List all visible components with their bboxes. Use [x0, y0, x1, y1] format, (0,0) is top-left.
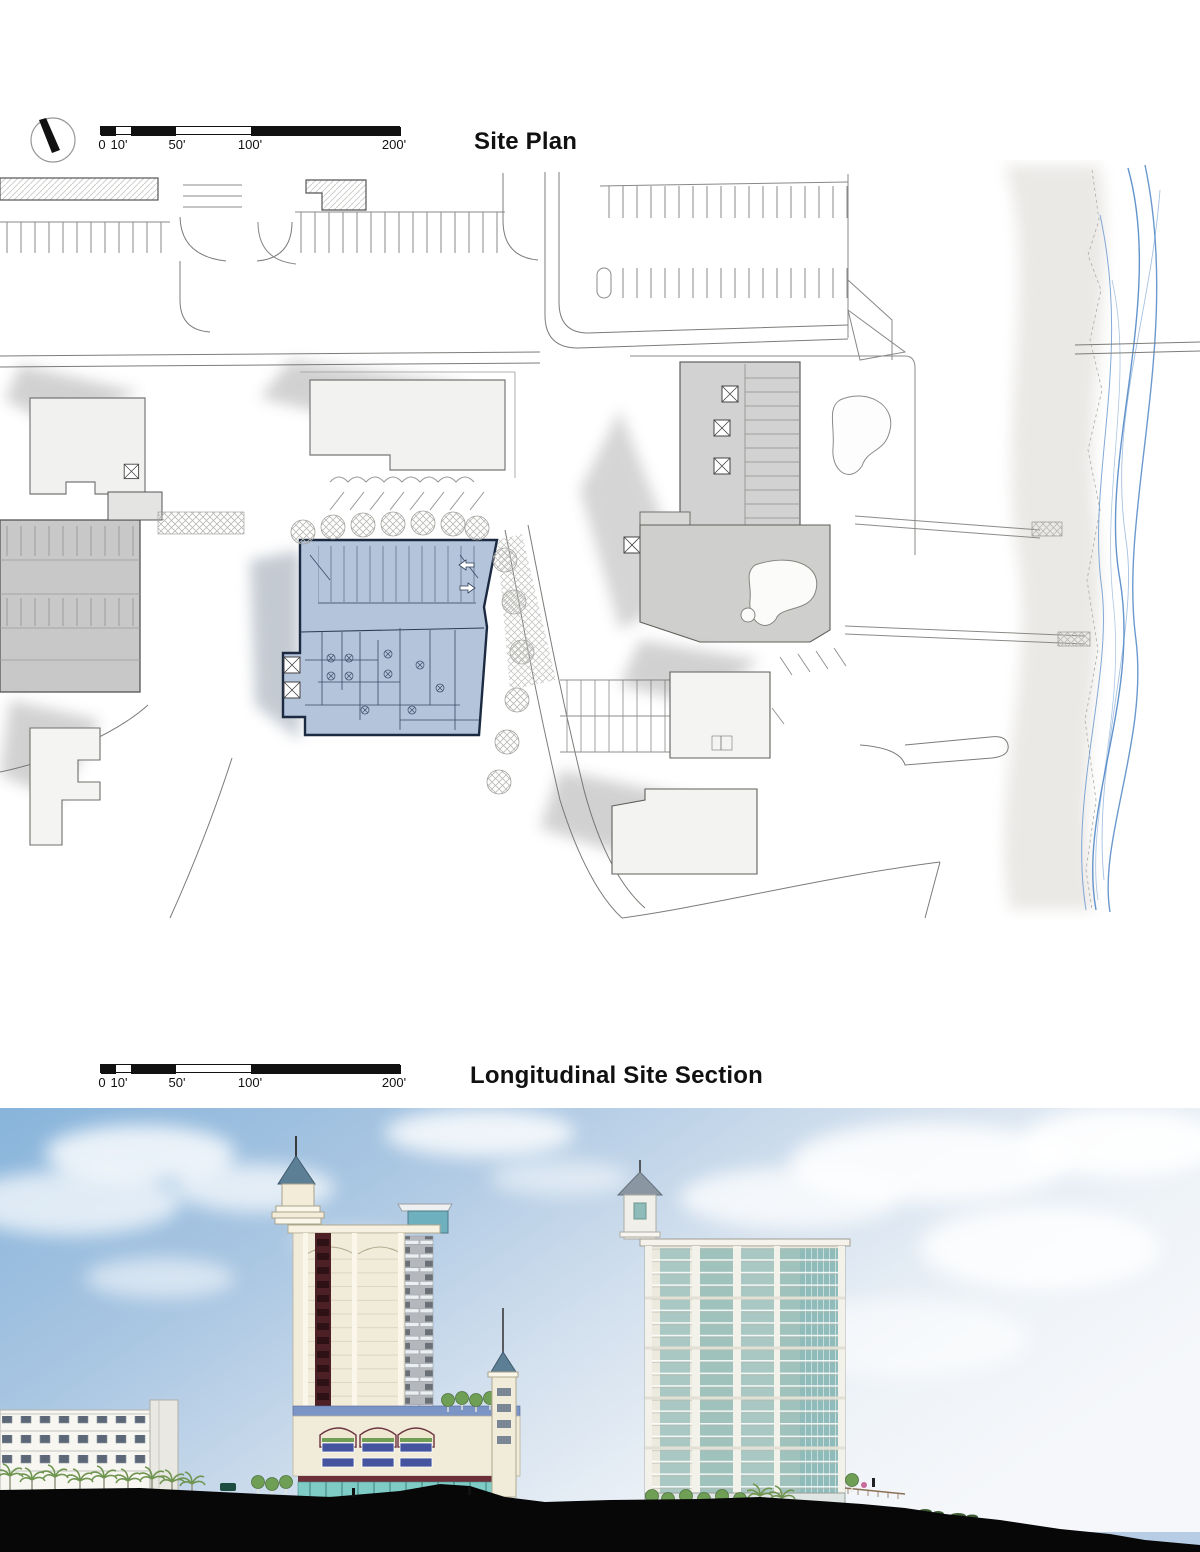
site-plan-title: Site Plan	[474, 128, 577, 156]
scale-bar-labels: 0 10' 50' 100' 200'	[100, 137, 400, 151]
scale-label: 200'	[382, 1075, 406, 1090]
elevator-core	[714, 458, 730, 474]
drawing-sheet: { "page": { "background": "#ffffff" }, "…	[0, 0, 1200, 1552]
scale-label: 10'	[111, 1075, 128, 1090]
scale-bar-track	[100, 126, 400, 135]
vehicle	[220, 1483, 236, 1491]
existing-building-south-b	[612, 789, 757, 874]
parking-garage-west	[0, 464, 244, 692]
retail-strip-building	[0, 178, 158, 200]
site-plan-scale-bar: 0 10' 50' 100' 200'	[100, 126, 400, 152]
building-detail	[712, 736, 732, 750]
scale-label: 50'	[169, 1075, 186, 1090]
site-section-rendering	[0, 1108, 1200, 1552]
low-rise-building	[0, 1400, 205, 1498]
existing-building-center	[300, 372, 515, 510]
elevator-core	[284, 657, 300, 673]
stair-core	[124, 464, 138, 478]
carport-arches	[330, 477, 474, 482]
scale-label: 0	[98, 1075, 105, 1090]
angled-parking	[330, 492, 484, 510]
roof-slab	[398, 1204, 452, 1211]
parking-lot-northeast	[597, 174, 905, 360]
existing-building-southwest	[30, 728, 100, 845]
sidewalk-hatch	[497, 534, 556, 690]
garage-level-stalls	[318, 546, 476, 602]
floor-slabs	[645, 1248, 845, 1498]
scale-label: 100'	[238, 1075, 262, 1090]
signage-band	[298, 1476, 514, 1482]
elevator-core	[624, 537, 640, 553]
scale-bar-labels: 0 10' 50' 100' 200'	[100, 1075, 400, 1089]
pedestrian-crossing	[158, 512, 244, 534]
tower-cornice	[288, 1225, 440, 1233]
person-figure	[468, 1486, 471, 1495]
scale-label: 200'	[382, 137, 406, 152]
cupola-body	[282, 1184, 314, 1208]
parking-stalls	[614, 268, 848, 298]
parking-stalls	[600, 186, 848, 218]
parking-stalls	[2, 222, 168, 253]
elevator-core	[284, 682, 300, 698]
window-row	[2, 1435, 148, 1449]
podium-blue-band	[293, 1406, 520, 1416]
scale-label: 0	[98, 137, 105, 152]
scale-bar-track	[100, 1064, 400, 1073]
small-building	[306, 180, 366, 210]
cupola-window	[634, 1203, 646, 1219]
existing-building-west	[30, 398, 145, 494]
person-figure	[352, 1488, 355, 1497]
pilaster	[352, 1233, 357, 1413]
tower-cornice	[640, 1239, 850, 1246]
scale-label: 50'	[169, 137, 186, 152]
cupola-cornice	[276, 1206, 320, 1212]
cupola-cornice	[620, 1232, 660, 1237]
scale-label: 10'	[111, 137, 128, 152]
beach-umbrella	[861, 1482, 867, 1488]
beach-and-shoreline	[1004, 165, 1160, 912]
parking-lot-north-center	[258, 180, 505, 264]
elevator-core	[722, 386, 738, 402]
garage-entry-canopy	[108, 492, 162, 520]
beach-dune-sand	[1004, 165, 1105, 910]
section-title: Longitudinal Site Section	[470, 1062, 763, 1090]
cupola-cornice	[272, 1212, 324, 1218]
pilaster	[398, 1233, 403, 1413]
cupola-base	[275, 1218, 321, 1224]
window-row	[2, 1455, 148, 1469]
window-row	[2, 1416, 148, 1430]
person-figure	[872, 1478, 875, 1487]
section-scale-bar: 0 10' 50' 100' 200'	[100, 1064, 400, 1090]
site-plan-drawing	[0, 160, 1200, 920]
spa-pool	[741, 608, 755, 622]
parking-stalls	[296, 212, 504, 253]
balcony-stack	[405, 1236, 433, 1413]
parking-lot-northwest	[0, 178, 242, 253]
elevator-core	[714, 420, 730, 436]
pool	[832, 396, 890, 475]
pilaster	[303, 1233, 308, 1413]
proposed-building-plan	[283, 540, 497, 735]
scale-label: 100'	[238, 137, 262, 152]
